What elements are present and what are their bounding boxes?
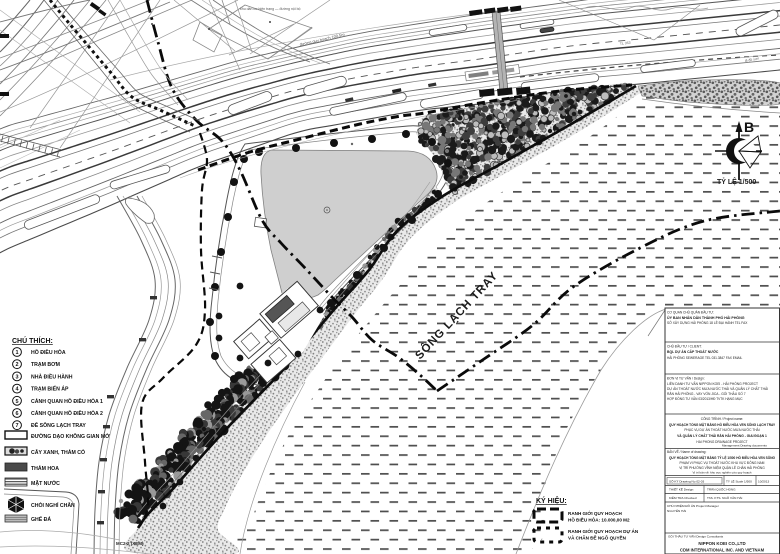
svg-text:đường quy hoạch 100.5m: đường quy hoạch 100.5m xyxy=(299,32,346,47)
svg-text:GÓI THẦU TƯ VẤN Design Consu: GÓI THẦU TƯ VẤN Design Consultants xyxy=(668,534,724,539)
svg-text:HỢP ĐỒNG TƯ VẤN 03/2013/HĐ: HỢP ĐỒNG TƯ VẤN 03/2013/HĐ TVTK HẠNG MỤC xyxy=(667,396,743,401)
svg-text:Management Drawing documents: Management Drawing documents xyxy=(722,444,767,448)
svg-text:ĐƯỜNG DẠO KHÔNG GIAN MỞ: ĐƯỜNG DẠO KHÔNG GIAN MỞ xyxy=(31,432,110,440)
svg-text:HẢI PHÒNG SEWERAGE TEL 031.3: HẢI PHÒNG SEWERAGE TEL 031.3847 FAX EMAI… xyxy=(667,355,743,360)
svg-text:CHỦ ĐẦU TƯ / CLIENT:: CHỦ ĐẦU TƯ / CLIENT: xyxy=(667,344,702,349)
svg-text:ĐƠN VỊ TƯ VẤN / Design:: ĐƠN VỊ TƯ VẤN / Design: xyxy=(667,377,705,381)
svg-text:QUY HOẠCH TỔNG MẶT BẰNG TỶ LỆ: QUY HOẠCH TỔNG MẶT BẰNG TỶ LỆ 1/500 HỒ Đ… xyxy=(669,455,776,460)
svg-text:DỰ ÁN THOÁT NƯỚC MƯA NƯỚC THẢI: DỰ ÁN THOÁT NƯỚC MƯA NƯỚC THẢI VÀ QUẢN L… xyxy=(667,386,768,391)
svg-text:MẶT NƯỚC: MẶT NƯỚC xyxy=(31,479,60,487)
svg-text:5: 5 xyxy=(15,399,18,405)
svg-text:HỒ ĐIỀU HÒA: 10.000,00 M2: HỒ ĐIỀU HÒA: 10.000,00 M2 xyxy=(568,516,630,523)
svg-text:CHỦ NHIỆM ĐỒ ÁN Project Mana: CHỦ NHIỆM ĐỒ ÁN Project Manager xyxy=(667,503,719,508)
svg-text:THIẾT KẾ Design: THIẾT KẾ Design xyxy=(669,487,694,492)
svg-text:ĐÊ SÔNG LẠCH TRAY: ĐÊ SÔNG LẠCH TRAY xyxy=(31,421,86,429)
svg-text:SỞ XÂY DỰNG HẢI PHÒNG 18 LÊ: SỞ XÂY DỰNG HẢI PHÒNG 18 LÊ ĐẠI HÀNH TEL… xyxy=(667,320,748,325)
svg-text:LIÊN DANH TƯ VẤN NIPPON KOEI -: LIÊN DANH TƯ VẤN NIPPON KOEI - HẢI PHÒNG… xyxy=(667,381,758,386)
svg-text:QUY HOẠCH TỔNG MẶT BẰNG HỒ ĐIỀ: QUY HOẠCH TỔNG MẶT BẰNG HỒ ĐIỀU HÒA VEN … xyxy=(669,422,776,427)
svg-text:ThS. KTS. NGÔ VĂN HẢI: ThS. KTS. NGÔ VĂN HẢI xyxy=(707,495,743,500)
svg-text:VỊ TRÍ PHƯỜNG VĨNH NIỆM QUẬN L: VỊ TRÍ PHƯỜNG VĨNH NIỆM QUẬN LÊ CHÂN HẢI… xyxy=(679,465,765,470)
svg-text:4: 4 xyxy=(15,387,19,393)
svg-text:BQL DỰ ÁN CẤP THOÁT NƯỚC: BQL DỰ ÁN CẤP THOÁT NƯỚC xyxy=(667,349,719,354)
svg-text:VÀ QUẢN LÝ CHẤT THẢI RẮN HẢI P: VÀ QUẢN LÝ CHẤT THẢI RẮN HẢI PHÒNG - GIA… xyxy=(677,433,767,438)
svg-text:6: 6 xyxy=(15,411,18,417)
svg-text:TRẠM BƠM: TRẠM BƠM xyxy=(31,362,60,368)
svg-text:BẢN VẼ / Name of drawing:: BẢN VẼ / Name of drawing: xyxy=(667,449,706,454)
svg-text:RẮN HẢI PHÒNG - VAY VỐN JICA -: RẮN HẢI PHÒNG - VAY VỐN JICA - GÓI THẦU … xyxy=(667,391,746,396)
svg-text:GHẾ ĐÁ: GHẾ ĐÁ xyxy=(31,516,51,523)
svg-text:CDM INTERNATIONAL INC. AND VIE: CDM INTERNATIONAL INC. AND VIETNAM xyxy=(680,548,765,553)
svg-text:CHÚ THÍCH:: CHÚ THÍCH: xyxy=(12,336,53,345)
svg-text:CẢNH QUAN HỒ ĐIỀU HÒA 1: CẢNH QUAN HỒ ĐIỀU HÒA 1 xyxy=(31,397,103,405)
svg-text:SỐ KÝ Drawing No 02-03: SỐ KÝ Drawing No 02-03 xyxy=(669,479,705,484)
svg-text:CHÒI NGHỈ CHÂN: CHÒI NGHỈ CHÂN xyxy=(31,501,75,509)
svg-text:7: 7 xyxy=(15,423,18,429)
svg-text:CÂY XANH, THẢM CỎ: CÂY XANH, THẢM CỎ xyxy=(31,449,85,456)
svg-text:CÔNG TRÌNH / Project name:: CÔNG TRÌNH / Project name: xyxy=(701,416,744,421)
svg-text:CƠ QUAN CHỦ QUẢN ĐẦU TƯ:: CƠ QUAN CHỦ QUẢN ĐẦU TƯ: xyxy=(667,310,714,315)
svg-text:NGUYỄN HẢI: NGUYỄN HẢI xyxy=(667,508,686,513)
svg-text:VÀ CHÂN ĐÊ NGÔ QUYỀN: VÀ CHÂN ĐÊ NGÔ QUYỀN xyxy=(568,534,627,541)
svg-text:RANH GIỚI QUY HOẠCH DỰ ÁN: RANH GIỚI QUY HOẠCH DỰ ÁN xyxy=(568,527,639,534)
svg-text:TỶ LỆ Scale 1/500: TỶ LỆ Scale 1/500 xyxy=(726,479,752,484)
svg-text:khu dân cư hiện trạng — đường: khu dân cư hiện trạng — đường nội bộ xyxy=(240,7,301,11)
svg-text:RANH GIỚI QUY HOẠCH: RANH GIỚI QUY HOẠCH xyxy=(568,509,623,516)
svg-text:B: B xyxy=(744,119,754,135)
svg-text:KIỂM TRA Checked: KIỂM TRA Checked xyxy=(669,495,697,500)
svg-text:10/2013: 10/2013 xyxy=(758,480,769,484)
svg-text:CẢNH QUAN HỒ ĐIỀU HÒA 2: CẢNH QUAN HỒ ĐIỀU HÒA 2 xyxy=(31,409,103,417)
svg-text:TL 353: TL 353 xyxy=(620,41,631,46)
svg-text:2: 2 xyxy=(15,362,18,368)
svg-text:3: 3 xyxy=(15,374,18,380)
svg-text:PHẠM VI PHỤC VỤ THOÁT NƯỚC KHU: PHẠM VI PHỤC VỤ THOÁT NƯỚC KHU VỰC ĐÔNG … xyxy=(680,460,765,465)
svg-text:Vị trí bản vẽ: khu vực nghiên: Vị trí bản vẽ: khu vực nghiên cứu quy ho… xyxy=(693,471,752,475)
svg-text:NIPPON KOEI CO.,LTD: NIPPON KOEI CO.,LTD xyxy=(698,541,745,546)
svg-text:NHÀ ĐIỀU HÀNH: NHÀ ĐIỀU HÀNH xyxy=(31,373,73,380)
svg-text:MC2-2 (XEM): MC2-2 (XEM) xyxy=(116,541,144,546)
svg-text:PHỤC VỤ DỰ ÁN THOÁT NƯỚC MƯA N: PHỤC VỤ DỰ ÁN THOÁT NƯỚC MƯA NƯỚC THẢI xyxy=(684,427,759,432)
svg-text:1: 1 xyxy=(15,350,18,356)
svg-text:TRẠM BIẾN ÁP: TRẠM BIẾN ÁP xyxy=(31,386,69,393)
svg-text:HỒ ĐIỀU HÒA: HỒ ĐIỀU HÒA xyxy=(31,348,66,356)
svg-text:TỶ LỆ 1/500: TỶ LỆ 1/500 xyxy=(717,177,756,186)
svg-text:THẢM HOA: THẢM HOA xyxy=(31,465,59,472)
svg-text:TRẦN QUỐC HÙNG: TRẦN QUỐC HÙNG xyxy=(707,487,736,492)
svg-text:ỦY BAN NHÂN DÂN THÀNH PHỐ HẢI: ỦY BAN NHÂN DÂN THÀNH PHỐ HẢI PHÒNG xyxy=(667,315,745,320)
svg-text:KÝ HIỆU:: KÝ HIỆU: xyxy=(536,496,567,505)
